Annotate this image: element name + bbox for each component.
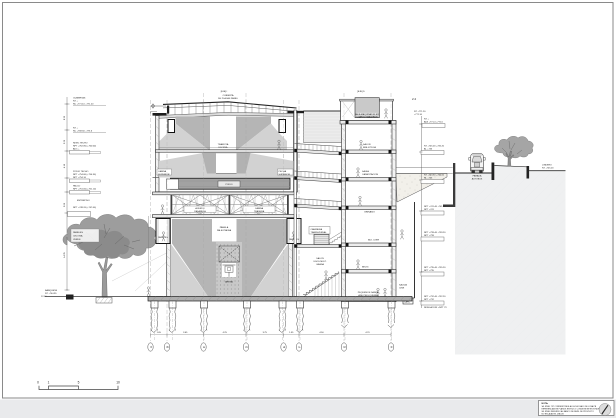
- svg-text:CUARTO TABLEROS: CUARTO TABLEROS: [356, 115, 378, 118]
- svg-text:+771.10: +771.10: [414, 114, 423, 116]
- svg-text:NPT +735: NPT +735: [424, 270, 435, 272]
- svg-text:2.2: 2.2: [412, 97, 417, 101]
- svg-text:CUBIERTAS: CUBIERTAS: [73, 97, 86, 100]
- svg-text:NPT +748.20 (+747.60): NPT +748.20 (+747.60): [73, 207, 96, 209]
- svg-text:NIVEL TECHO: NIVEL TECHO: [73, 143, 88, 145]
- svg-text:PANELES: PANELES: [73, 231, 83, 234]
- svg-text:[EJE] I: [EJE] I: [221, 91, 228, 93]
- svg-text:CELOSIA: CELOSIA: [73, 235, 83, 238]
- svg-text:NT +745.00: NT +745.00: [542, 168, 554, 170]
- svg-text:14.35: 14.35: [64, 251, 66, 257]
- svg-text:10: 10: [116, 381, 120, 385]
- svg-text:PALEOTAFRA: PALEOTAFRA: [217, 229, 232, 232]
- svg-text:SALON: SALON: [316, 257, 324, 260]
- svg-text:NPT +741.40 +741.20: NPT +741.40 +741.20: [424, 206, 446, 208]
- svg-text:NIVELACION +NPT 73: NIVELACION +NPT 73: [424, 306, 447, 309]
- svg-text:NT +744.95: NT +744.95: [45, 293, 57, 295]
- svg-text:CINE: CINE: [399, 288, 405, 290]
- svg-text:VERDE: VERDE: [73, 239, 81, 241]
- svg-text:PASARELA: PASARELA: [194, 210, 206, 213]
- svg-text:[EJE] D: [EJE] D: [357, 91, 365, 93]
- svg-text:NT +: NT +: [73, 101, 78, 103]
- svg-text:NO ESCALAR EL DIBUJO: NO ESCALAR EL DIBUJO: [542, 412, 565, 415]
- svg-text:NPT +754.80 (+754.30): NPT +754.80 (+754.30): [73, 174, 96, 176]
- svg-text:PEQUENOS DANZA: PEQUENOS DANZA: [358, 291, 379, 294]
- svg-text:GIMNASIO: GIMNASIO: [364, 211, 375, 214]
- svg-text:PECHA: PECHA: [279, 170, 287, 173]
- svg-text:NPT +735.40 +735.20: NPT +735.40 +735.20: [424, 267, 446, 269]
- svg-text:NC +768.50 +773.6: NC +768.50 +773.6: [73, 131, 93, 133]
- svg-text:NPT +754.10: NPT +754.10: [73, 177, 87, 179]
- svg-text:PODIO TECHO: PODIO TECHO: [73, 171, 89, 173]
- svg-text:AUTOBUS: AUTOBUS: [472, 178, 483, 181]
- svg-text:F: F: [297, 346, 301, 348]
- svg-text:NT +743.50 +745.00: NT +743.50 +745.00: [424, 175, 445, 177]
- svg-text:B: B: [165, 346, 169, 348]
- svg-text:ARENA: ARENA: [225, 281, 233, 284]
- svg-text:PALCO: PALCO: [73, 185, 81, 188]
- svg-text:TRANSVERSAL: TRANSVERSAL: [311, 231, 328, 234]
- svg-text:ENTREPISO: ENTREPISO: [77, 200, 90, 202]
- svg-text:CABINA: CABINA: [158, 170, 167, 173]
- svg-text:NPT +762.80 (+760.60): NPT +762.80 (+760.60): [73, 146, 96, 148]
- svg-text:NC +771.10 +771.20: NC +771.10 +771.20: [73, 104, 94, 106]
- svg-text:CAPACITACION: CAPACITACION: [362, 173, 379, 176]
- svg-text:BELIG: BELIG: [362, 267, 369, 269]
- svg-text:CABINA: CABINA: [255, 207, 264, 210]
- svg-text:1: 1: [48, 381, 50, 385]
- svg-text:CUBIERTA: CUBIERTA: [223, 94, 234, 97]
- svg-text:SUPERIOR: SUPERIOR: [158, 174, 170, 176]
- svg-text:TRASERA: TRASERA: [254, 210, 265, 213]
- svg-text:PARADA: PARADA: [473, 175, 482, 178]
- svg-text:0: 0: [37, 381, 39, 385]
- svg-text:CAMINERA: CAMINERA: [311, 228, 323, 231]
- svg-text:DE PLACAS PANEL: DE PLACAS PANEL: [218, 97, 239, 100]
- svg-text:NPT +741: NPT +741: [424, 209, 435, 211]
- svg-text:NPT +732: NPT +732: [424, 299, 435, 301]
- svg-text:NT +771.20: NT +771.20: [414, 111, 426, 113]
- svg-text:NPT +739.40 +739.20: NPT +739.40 +739.20: [424, 232, 446, 234]
- svg-text:SALA MAQUINAS ELEV.: SALA MAQUINAS ELEV.: [355, 113, 380, 116]
- svg-text:A: A: [149, 346, 153, 348]
- svg-text:NT +745.00 +745.20: NT +745.00 +745.20: [424, 146, 445, 148]
- svg-text:NL +743: NL +743: [424, 178, 433, 180]
- svg-text:NPT +732.40 +732.20: NPT +732.40 +732.20: [424, 296, 446, 298]
- svg-text:BANQUETA: BANQUETA: [45, 289, 57, 292]
- svg-text:H: H: [389, 346, 393, 348]
- svg-text:SALON: SALON: [363, 143, 371, 146]
- svg-text:SUPERIOR: SUPERIOR: [279, 174, 291, 176]
- svg-text:NPT +751.60 (+751.10): NPT +751.60 (+751.10): [73, 189, 96, 191]
- svg-text:E: E: [282, 346, 286, 348]
- svg-text:USOS MULT.: USOS MULT.: [314, 261, 327, 263]
- svg-text:TRAMOYA: TRAMOYA: [218, 143, 229, 146]
- svg-text:BLK. LKER: BLK. LKER: [368, 240, 379, 242]
- svg-text:ALB +771.4 +771.0: ALB +771.4 +771.0: [424, 121, 444, 124]
- svg-text:SALIDA: SALIDA: [399, 284, 407, 287]
- svg-text:LINDERO: LINDERO: [542, 165, 552, 167]
- svg-text:NPT +739: NPT +739: [424, 235, 435, 237]
- svg-text:5: 5: [78, 381, 80, 385]
- svg-text:NT +: NT +: [424, 119, 429, 121]
- svg-text:NOTA:: NOTA:: [542, 402, 549, 405]
- svg-text:BIBLIOTECA: BIBLIOTECA: [363, 146, 376, 149]
- svg-text:PANELA: PANELA: [220, 226, 229, 229]
- svg-text:ADC +: ADC +: [73, 148, 80, 151]
- svg-text:AL +745: AL +745: [424, 148, 433, 151]
- svg-text:SALAS: SALAS: [362, 170, 370, 173]
- svg-text:NT +: NT +: [73, 128, 78, 130]
- svg-text:PODIO: PODIO: [225, 184, 232, 186]
- svg-text:GRADA: GRADA: [316, 263, 324, 266]
